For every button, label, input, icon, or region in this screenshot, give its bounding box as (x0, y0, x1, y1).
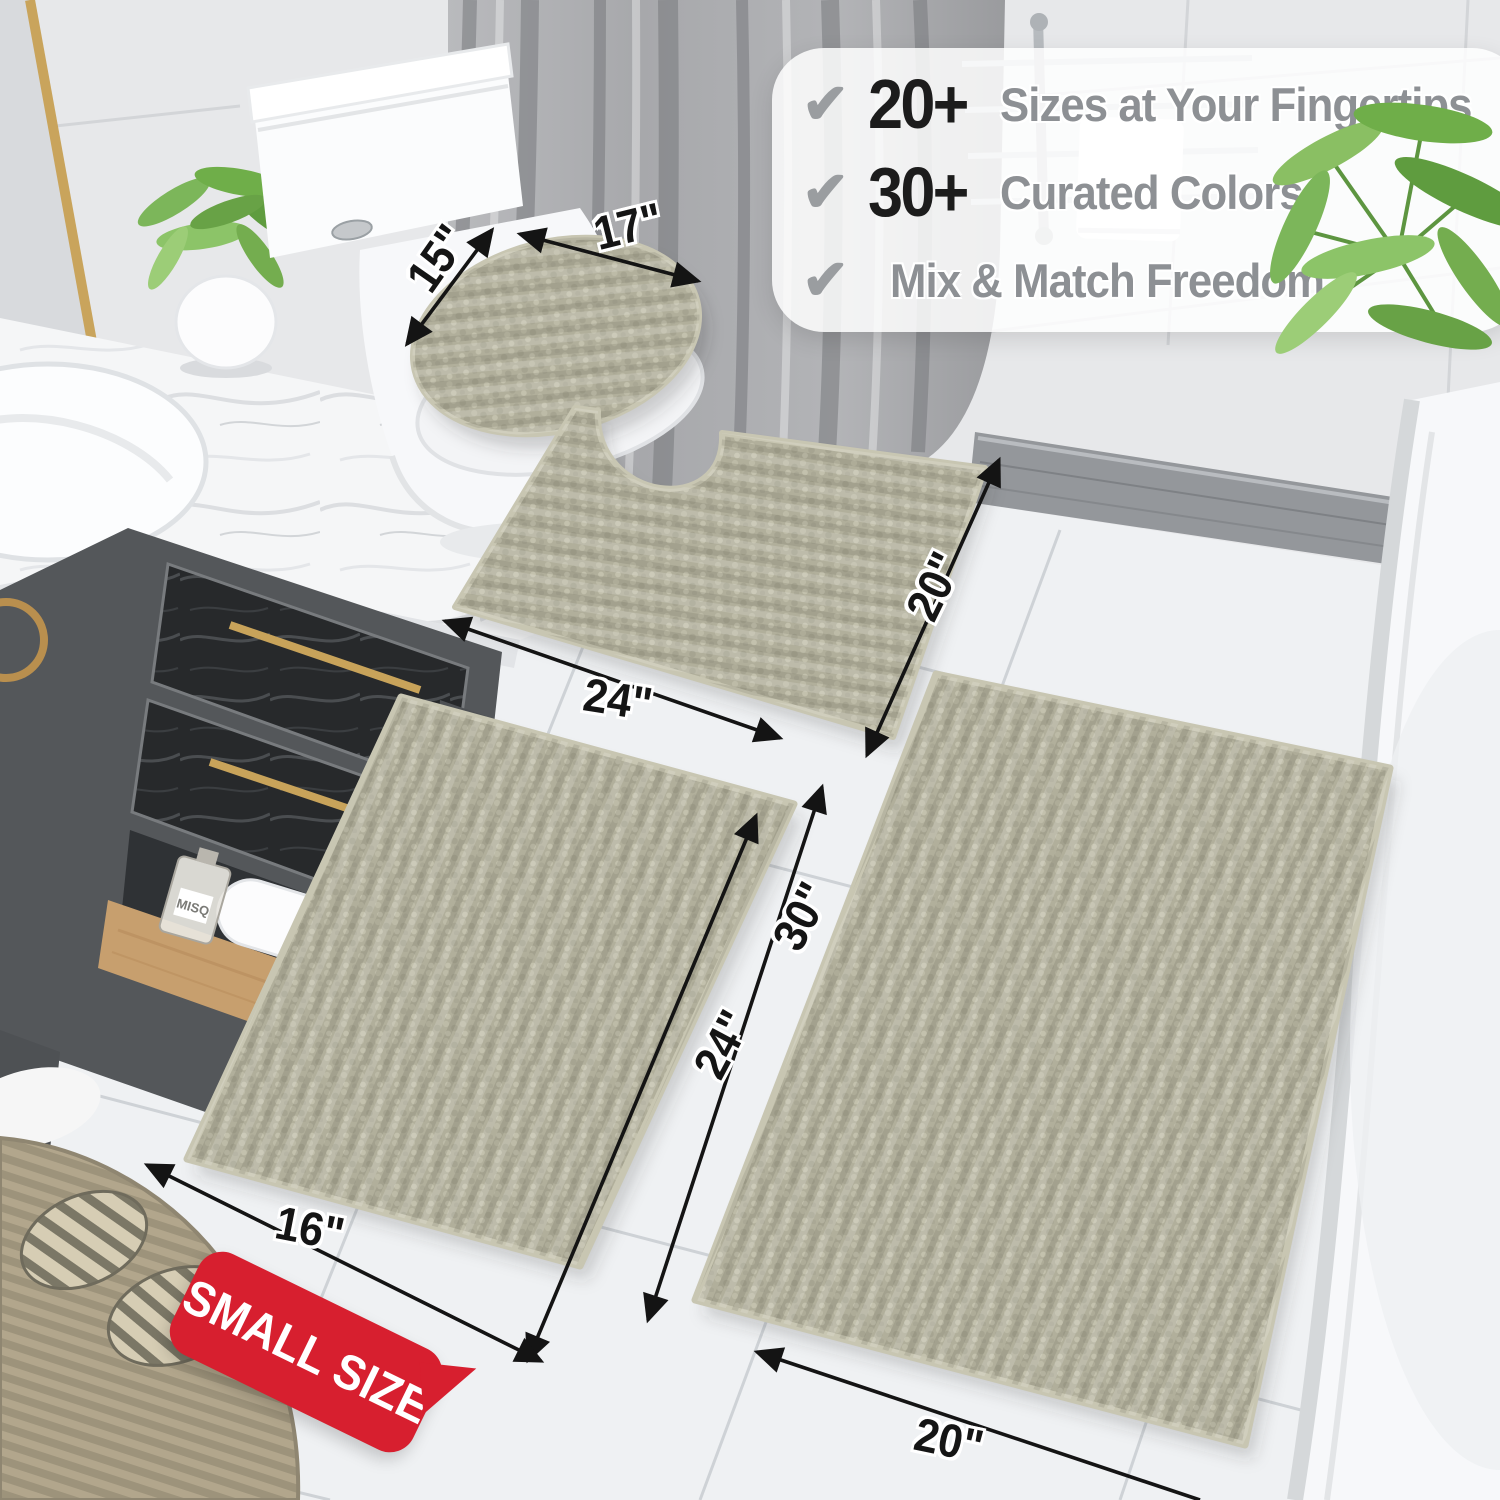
feature-row-sizes: ✔ 20+ Sizes at Your Fingertips (802, 60, 1500, 148)
feature-row-colors: ✔ 30+ Curated Colors (802, 148, 1500, 236)
product-photo: MISQ (0, 0, 1500, 1500)
feature-stat: 30+ (868, 152, 967, 232)
feature-callout: ✔ 20+ Sizes at Your Fingertips ✔ 30+ Cur… (772, 48, 1500, 332)
feature-label: Sizes at Your Fingertips (1000, 77, 1472, 132)
check-icon: ✔ (802, 247, 868, 313)
check-icon: ✔ (802, 71, 868, 137)
feature-stat: 20+ (868, 64, 967, 144)
feature-label: Curated Colors (1000, 165, 1303, 220)
feature-label: Mix & Match Freedom (890, 253, 1324, 308)
feature-row-mix-match: ✔ Mix & Match Freedom (802, 236, 1500, 324)
check-icon: ✔ (802, 159, 868, 225)
dim-label-contour-length: 24" (580, 666, 656, 731)
